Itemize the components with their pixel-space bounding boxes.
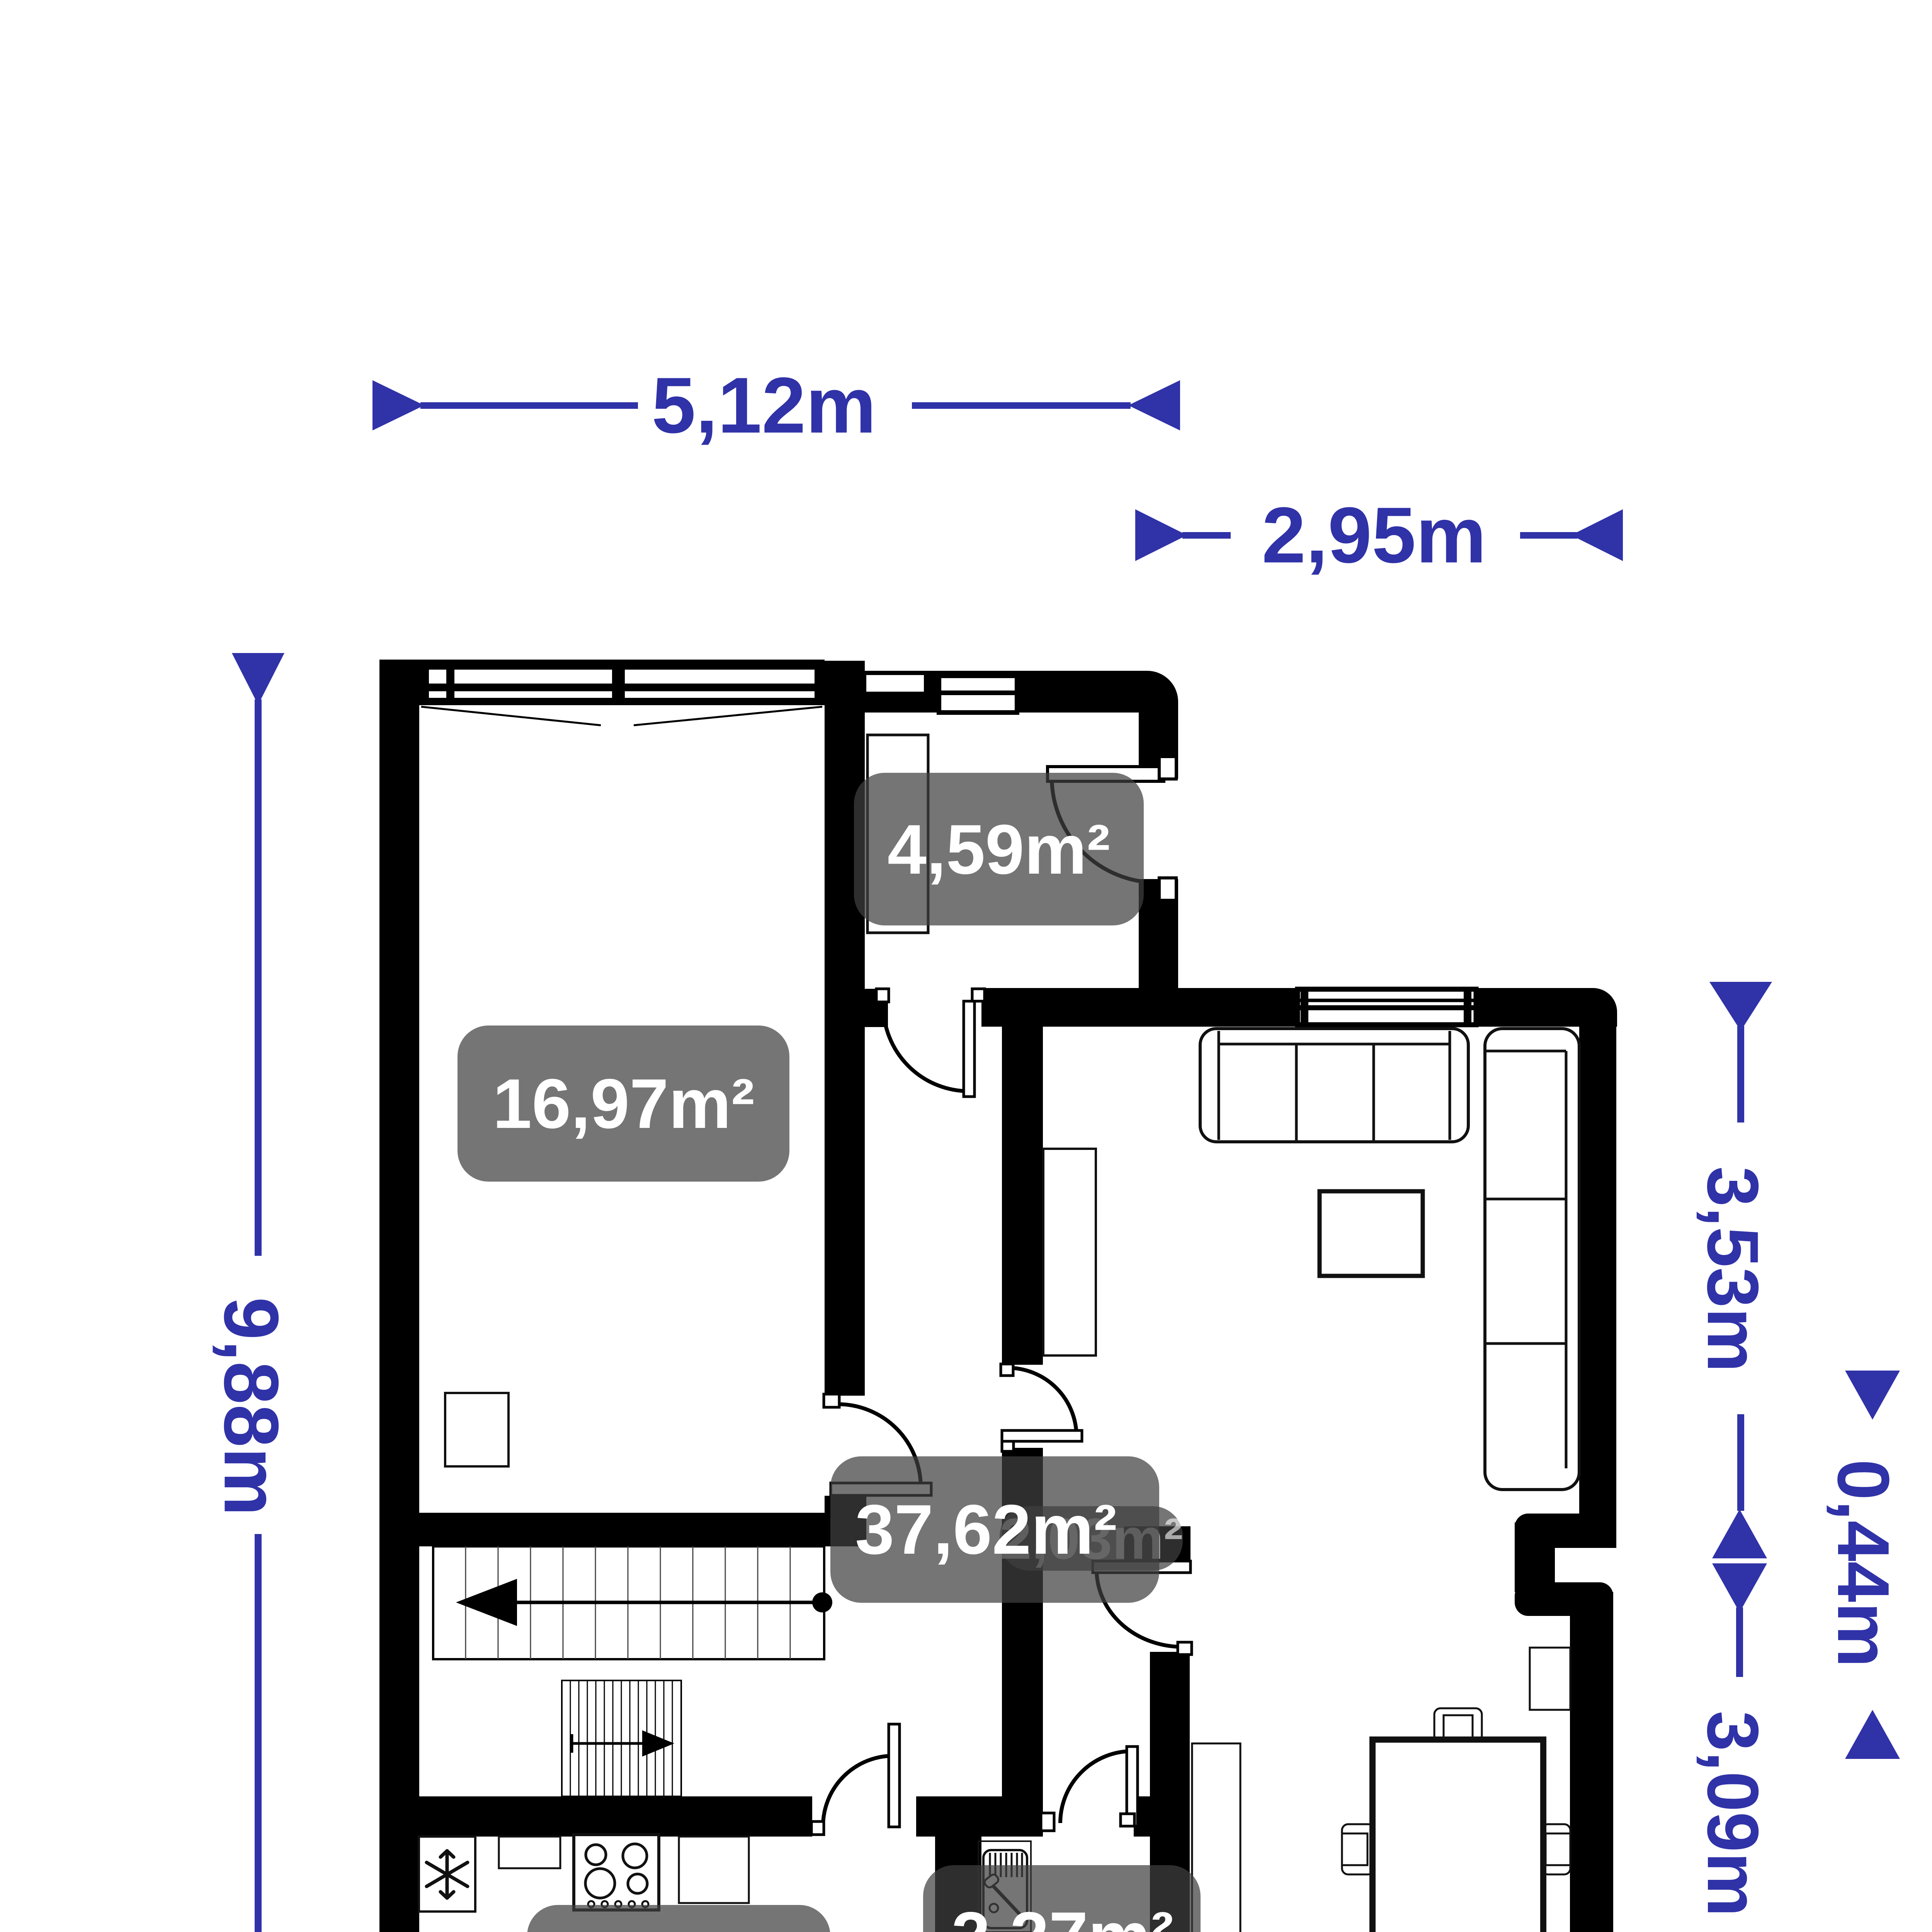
svg-text:4,59m²: 4,59m² bbox=[888, 810, 1111, 889]
svg-text:3,09m: 3,09m bbox=[1692, 1711, 1774, 1917]
svg-text:37,62m²: 37,62m² bbox=[855, 1490, 1117, 1569]
svg-text:2,27m²: 2,27m² bbox=[951, 1897, 1174, 1932]
svg-text:5,12m: 5,12m bbox=[651, 361, 876, 450]
svg-text:9,88m: 9,88m bbox=[208, 1297, 294, 1516]
svg-text:0,44m: 0,44m bbox=[1822, 1459, 1904, 1668]
svg-text:2,95m: 2,95m bbox=[1262, 491, 1486, 580]
svg-text:3,53m: 3,53m bbox=[1692, 1166, 1774, 1372]
svg-text:16,97m²: 16,97m² bbox=[493, 1064, 755, 1143]
